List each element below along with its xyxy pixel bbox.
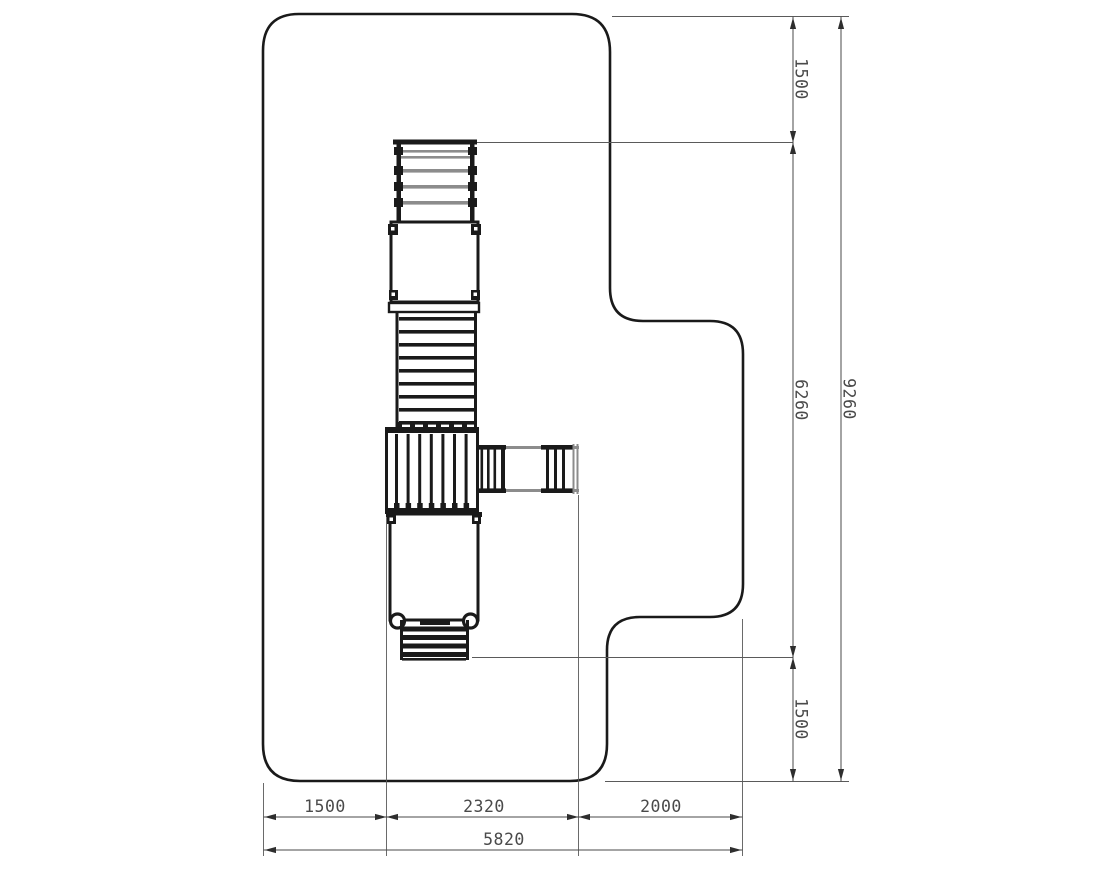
dimension-label-bottom-overall: 5820: [483, 830, 525, 849]
dimension-extension-lines: [264, 17, 850, 857]
lower-platform: [386, 512, 482, 628]
wobble-bridge-deck: [385, 422, 479, 514]
bridge-posts-right: [546, 446, 565, 492]
dimension-label-right-middle: 6260: [792, 379, 811, 421]
dimension-label-right-bottom: 1500: [792, 698, 811, 740]
dimension-label-right-overall: 9260: [840, 378, 859, 420]
deck-slats: [395, 434, 468, 507]
entry-stairs: [400, 620, 469, 661]
dimension-label-bottom-left: 1500: [304, 797, 346, 816]
bridge-posts-left: [481, 446, 506, 492]
overhead-ladder: [393, 140, 477, 226]
dimension-label-bottom-right: 2000: [640, 797, 682, 816]
dimension-lines: [264, 17, 842, 851]
upper-platform: [388, 222, 481, 312]
round-post-right: [464, 614, 478, 628]
safety-area-outline: [263, 14, 743, 781]
deck-teeth-bottom: [394, 503, 469, 508]
drawing-sheet: 1500 6260 1500 9260 1500 2320 2000 5820: [0, 0, 1110, 879]
technical-drawing-canvas: 1500 6260 1500 9260 1500 2320 2000 5820: [0, 0, 1110, 879]
side-step-bridge: [479, 444, 579, 494]
dimension-label-right-top: 1500: [792, 58, 811, 100]
climbing-ladder: [396, 312, 478, 428]
dimension-label-bottom-middle: 2320: [463, 797, 505, 816]
